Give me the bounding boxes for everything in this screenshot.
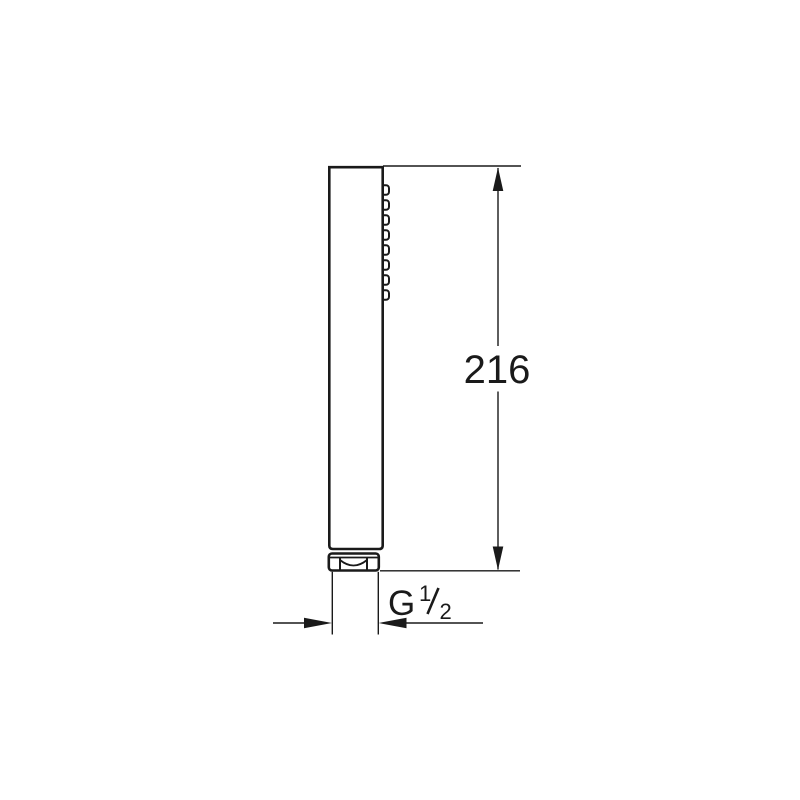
arrow-down-icon [493,547,504,571]
arrow-up-icon [493,168,504,192]
thread-denominator: 2 [440,599,452,624]
connector-nut [329,554,379,571]
shower-body-outline [329,167,382,549]
thread-numerator: 1 [419,581,431,606]
thread-dimension-label: G 1 2 [388,581,452,624]
technical-drawing-page: 216 G 1 2 [0,0,800,800]
hand-shower-dimension-drawing: 216 G 1 2 [0,0,800,800]
height-dimension-value: 216 [464,348,531,392]
nut-outline [329,554,379,571]
arrow-right-icon [304,618,332,629]
thread-prefix: G [388,584,415,623]
